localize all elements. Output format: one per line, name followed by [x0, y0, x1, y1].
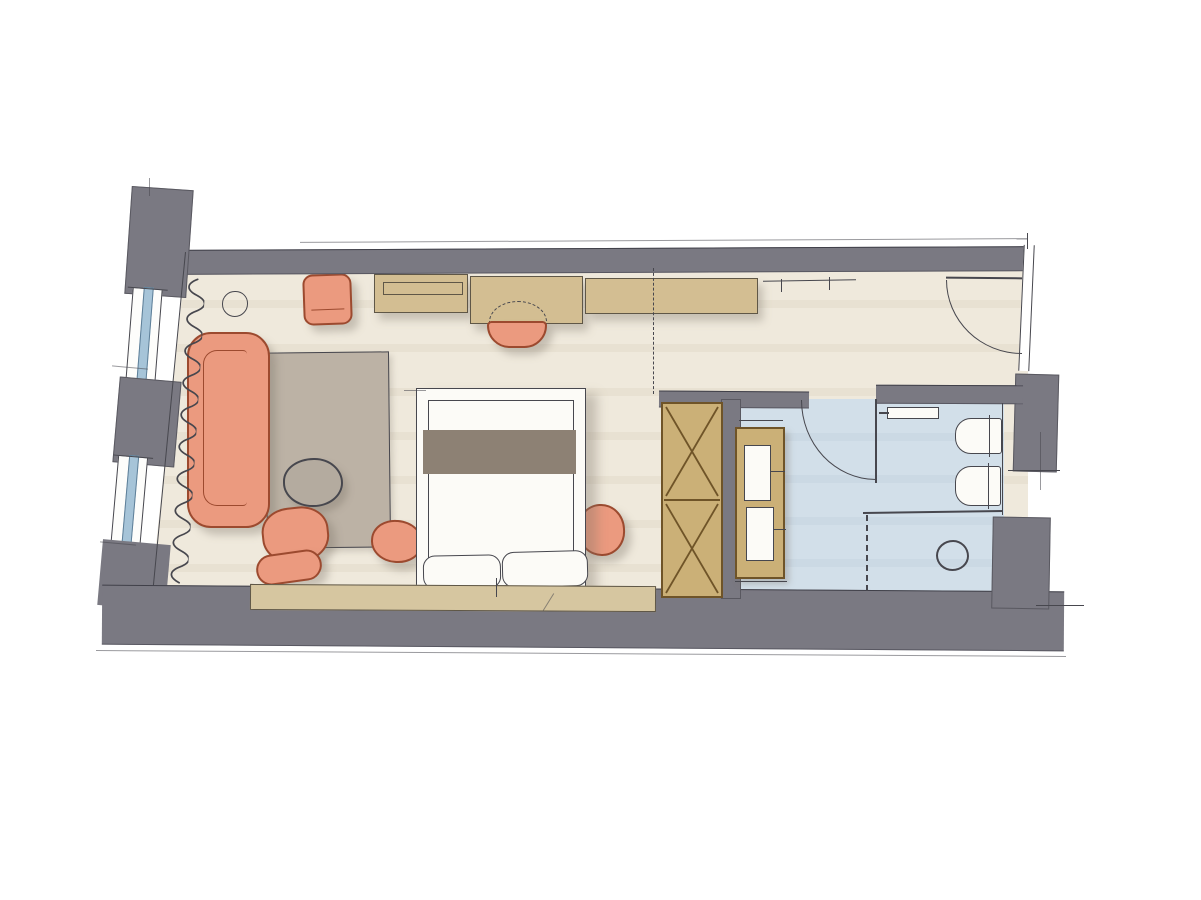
wall-pier-right-lower — [991, 517, 1051, 610]
lounge-chair-seat-line — [311, 308, 344, 310]
towel-stack — [744, 445, 771, 501]
window-1 — [125, 288, 162, 384]
wall-shelf — [887, 407, 939, 419]
window-2 — [110, 456, 148, 552]
sketch-tick — [404, 390, 426, 391]
wall-overshoot-tick — [1036, 605, 1084, 606]
bidet-line — [988, 463, 989, 509]
wall-outer-sketch-line — [300, 238, 1028, 243]
floor-plan-sketch — [0, 0, 1201, 900]
bidet — [955, 466, 1001, 506]
shelf-mount-line — [739, 420, 783, 421]
sofa-seat-line — [203, 350, 247, 506]
wall-shelf-arrow — [879, 412, 889, 414]
wall-outer-sketch-line — [96, 650, 1066, 657]
sketch-tick — [496, 578, 497, 597]
floor-drain — [936, 540, 969, 571]
lounge-chair — [302, 273, 353, 326]
coat-hanger — [829, 277, 830, 290]
side-table — [222, 291, 248, 317]
sketch-tick — [149, 178, 150, 196]
pillow — [502, 550, 589, 588]
sideboard — [374, 274, 468, 313]
wall-overshoot-tick — [1040, 432, 1041, 490]
window-glazing — [121, 455, 140, 553]
bathroom-right-edge-line — [1002, 403, 1003, 515]
toilet — [955, 418, 1002, 454]
wall-bathroom-top-right — [876, 385, 1023, 405]
towel-shelf — [735, 427, 785, 579]
bed-runner — [423, 430, 576, 474]
shelf-mount-line — [735, 581, 787, 582]
window-glazing — [136, 287, 154, 385]
coffee-table — [283, 458, 343, 507]
headboard-panel — [250, 584, 656, 612]
toilet-cistern-line — [989, 415, 990, 457]
wall-overshoot-tick — [1027, 233, 1028, 249]
coat-hanger — [781, 279, 782, 292]
sideboard-tray — [383, 282, 463, 295]
wardrobe-x-panels — [663, 404, 721, 596]
wall-top — [175, 246, 1030, 275]
shelf-tick — [773, 529, 786, 530]
shelf-tick — [771, 471, 785, 472]
shower-glass-dashed — [866, 515, 868, 591]
towel-stack — [746, 507, 774, 561]
wall-overshoot-tick — [1008, 470, 1060, 471]
zone-divider-dashed — [653, 268, 654, 394]
wardrobe — [661, 402, 723, 598]
sideboard-right — [585, 278, 758, 314]
